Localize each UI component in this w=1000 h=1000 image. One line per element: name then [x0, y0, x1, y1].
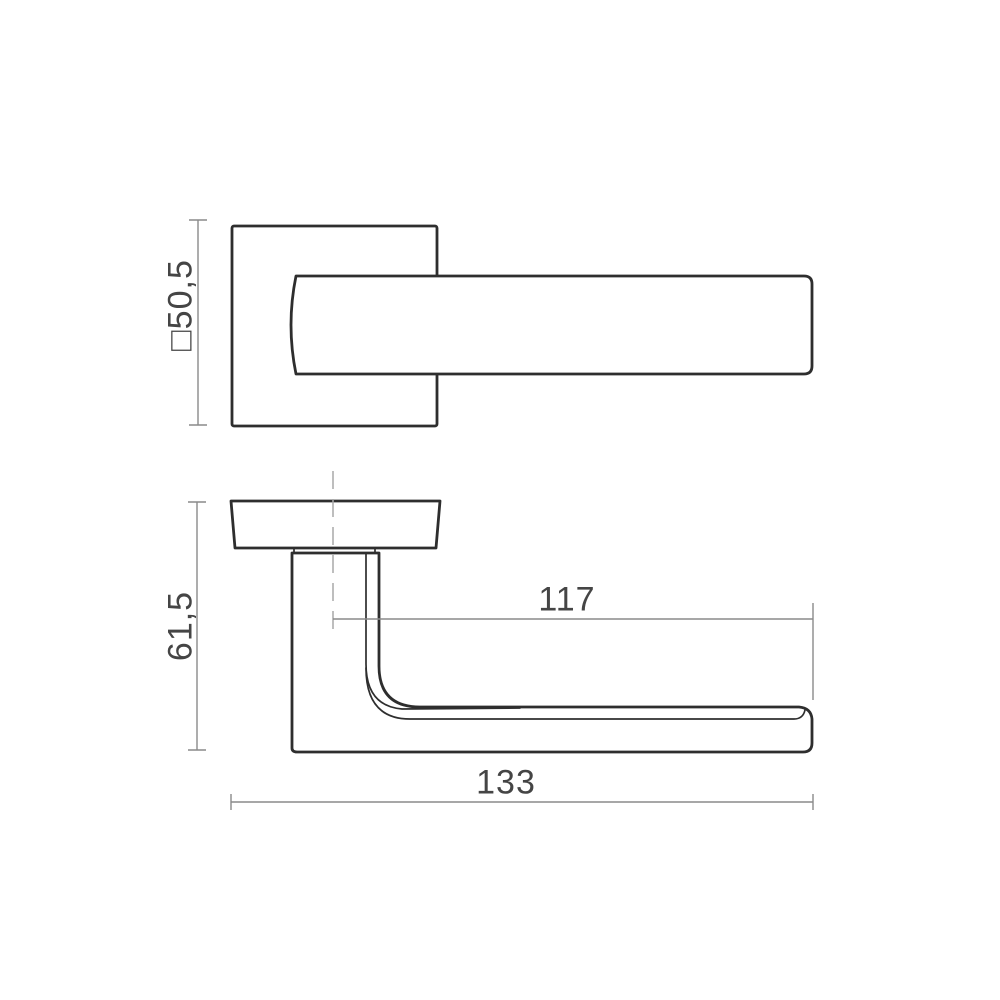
door-handle-drawing [0, 0, 1000, 1000]
dimension-label-height: 61,5 [162, 591, 201, 661]
dimension-label-rose-square: □50,5 [162, 259, 201, 351]
dimension-label-length: 133 [476, 764, 536, 803]
lever-bend-inner-detail-line [366, 553, 520, 709]
front-view [232, 226, 812, 426]
rose-side-outline [231, 501, 440, 548]
technical-drawing-canvas: □50,5 61,5 117 133 [0, 0, 1000, 1000]
dimension-label-reach: 117 [538, 581, 595, 620]
lever-front-outline [291, 276, 812, 374]
side-view [231, 471, 812, 752]
